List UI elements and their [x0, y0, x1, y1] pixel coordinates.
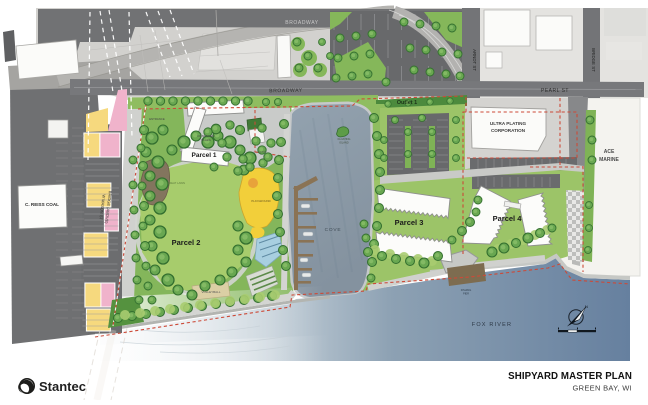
svg-text:Parcel 2: Parcel 2	[172, 238, 201, 247]
svg-text:FOX RIVER: FOX RIVER	[472, 322, 512, 328]
svg-text:ARNDT ST: ARNDT ST	[472, 49, 477, 71]
svg-text:Parcel 4: Parcel 4	[493, 214, 523, 223]
svg-text:Parcel 1: Parcel 1	[192, 152, 217, 159]
svg-text:BROADWAY: BROADWAY	[285, 20, 318, 26]
svg-text:GREAT LAWN: GREAT LAWN	[167, 181, 185, 185]
svg-text:N: N	[585, 304, 588, 309]
svg-text:Stantec: Stantec	[39, 379, 86, 394]
svg-text:VOLLEYBALL: VOLLEYBALL	[201, 290, 220, 294]
svg-text:PIER: PIER	[463, 292, 469, 296]
svg-text:CORPORATION: CORPORATION	[491, 128, 526, 133]
svg-text:FISHING: FISHING	[461, 288, 472, 292]
svg-text:PLAYGROUND: PLAYGROUND	[251, 199, 270, 203]
svg-text:ULTRA PLATING: ULTRA PLATING	[490, 121, 527, 126]
svg-text:MARINE: MARINE	[599, 157, 619, 163]
svg-text:Outlet 1: Outlet 1	[397, 100, 417, 106]
svg-text:GREEN BAY, WI: GREEN BAY, WI	[573, 384, 632, 393]
svg-text:ISLAND: ISLAND	[339, 141, 348, 145]
svg-text:PLAZA: PLAZA	[201, 138, 211, 142]
svg-text:ENTRANCE: ENTRANCE	[149, 117, 165, 121]
svg-text:FLOATING: FLOATING	[338, 137, 351, 141]
svg-text:C. REISS COAL: C. REISS COAL	[25, 202, 59, 207]
svg-text:PEARL ST: PEARL ST	[541, 88, 569, 94]
svg-text:Parcel 3: Parcel 3	[395, 218, 424, 227]
svg-text:BRIDGE ST: BRIDGE ST	[591, 48, 596, 72]
svg-text:BROADWAY: BROADWAY	[269, 88, 303, 95]
svg-text:SHIPYARD MASTER PLAN: SHIPYARD MASTER PLAN	[508, 371, 632, 382]
svg-text:ACE: ACE	[604, 149, 615, 155]
svg-text:COVE: COVE	[325, 227, 342, 233]
